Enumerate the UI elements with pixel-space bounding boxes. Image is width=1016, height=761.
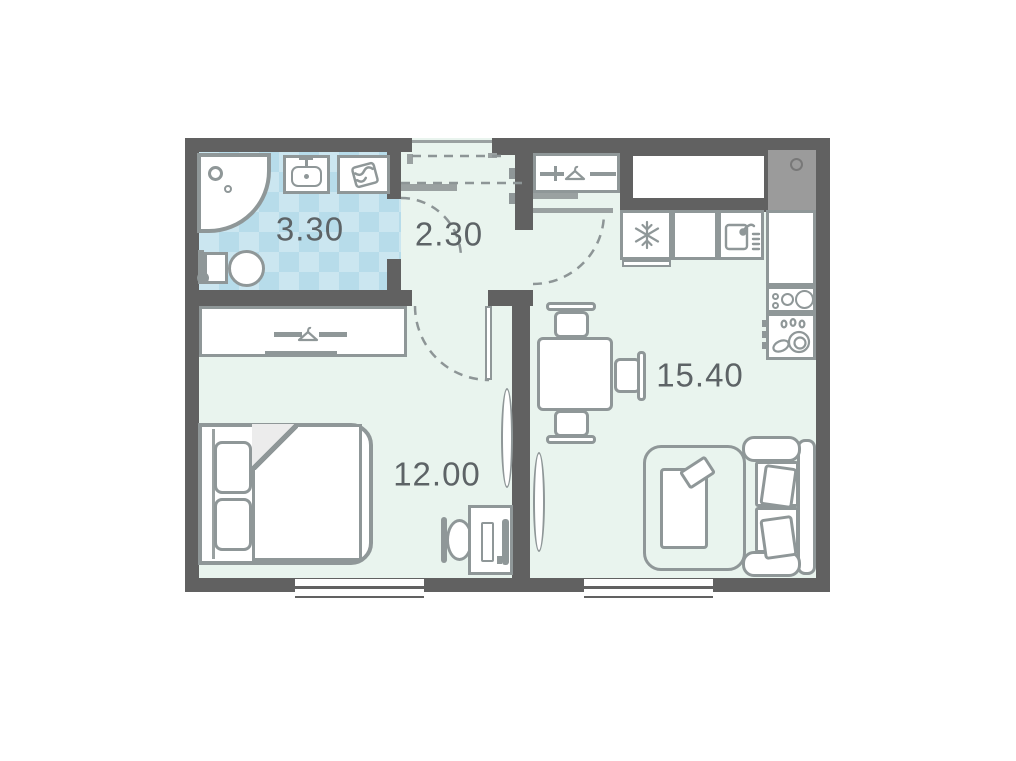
dishwasher-hinge-3 <box>762 342 766 349</box>
shower-head-icon <box>208 166 223 181</box>
floor-plan-canvas: 3.30 2.30 15.40 12.00 <box>0 0 1016 761</box>
keyboard-icon <box>481 522 494 562</box>
bedroom-area-label: 12.00 <box>393 458 481 491</box>
living-tv-icon <box>533 452 545 552</box>
dining-chair-top <box>554 311 589 338</box>
wardrobe <box>199 306 407 357</box>
fridge <box>620 210 672 260</box>
wall-bathroom-right-lower <box>387 259 401 293</box>
vent-pipe-icon <box>790 158 803 171</box>
dining-chair-bottom-back <box>546 435 596 444</box>
wall-center-horizontal <box>488 290 533 306</box>
entrance-door-hinge-upper <box>509 168 515 179</box>
wall-right <box>816 138 830 592</box>
sofa-armrest-top <box>742 436 801 462</box>
entrance-door-swing-arc <box>533 213 604 284</box>
kitchen-counter <box>766 210 816 286</box>
washing-machine <box>337 155 390 194</box>
bathroom-sink <box>283 155 330 194</box>
dining-chair-right-back <box>637 351 646 401</box>
bedroom-door-leaf <box>485 306 492 380</box>
dining-table <box>537 337 613 411</box>
desk <box>468 505 513 575</box>
wardrobe-door-track <box>265 351 337 357</box>
entry-shelf <box>533 193 578 199</box>
pillow-2 <box>214 498 252 551</box>
shower-drain-icon <box>224 185 232 193</box>
wall-top-left <box>185 138 412 152</box>
entrance-door-hinge-lower <box>509 193 515 204</box>
clothes-hanger-icon <box>296 325 320 343</box>
dining-chair-bottom <box>554 410 589 437</box>
floor-drain-icon <box>197 272 209 284</box>
burner-medium <box>781 293 794 306</box>
sink-faucet-icon <box>723 215 763 255</box>
toilet-bowl <box>228 250 265 287</box>
basin-drain-dot <box>304 174 309 179</box>
dishes-icon <box>771 318 815 358</box>
wall-bottom <box>185 578 830 592</box>
dishwasher-hinge-1 <box>762 320 766 327</box>
bedroom-tv-icon <box>501 388 513 488</box>
burner-small-1 <box>772 293 779 300</box>
entry-bench-ledge <box>533 208 613 213</box>
bedroom-window <box>295 579 424 598</box>
burner-large <box>795 290 814 309</box>
sofa-pillow-1 <box>759 464 797 509</box>
coat-rod-tick <box>554 166 557 181</box>
dishwasher <box>766 313 816 360</box>
kitchen-cabinet <box>672 210 718 260</box>
burner-small-2 <box>772 302 779 309</box>
dining-chair-top-back <box>546 302 596 311</box>
dishwasher-hinge-2 <box>762 331 766 338</box>
stove <box>766 286 816 313</box>
kitchen-sink-unit <box>718 210 764 260</box>
pillow-1 <box>214 441 252 494</box>
blanket-fold <box>252 424 298 470</box>
hallway-area-label: 2.30 <box>415 218 483 251</box>
apartment-floor-plan: 3.30 2.30 15.40 12.00 <box>185 138 830 592</box>
living-window <box>584 579 713 598</box>
bathroom-area-label: 3.30 <box>276 213 344 246</box>
fridge-door-strip <box>622 260 671 267</box>
laundry-basket-icon <box>347 159 383 191</box>
wall-bathroom-bedroom <box>185 290 412 306</box>
kitchen-living-area-label: 15.40 <box>656 359 744 392</box>
hallway-shelf-bar <box>401 184 457 191</box>
vent-shaft <box>768 150 816 210</box>
kitchen-window <box>633 156 764 198</box>
entry-coat-niche <box>533 153 620 193</box>
wall-center-vertical <box>512 306 530 578</box>
mouse-icon <box>497 556 502 564</box>
entrance-frame-mark-right <box>488 153 497 158</box>
blanket <box>252 424 362 561</box>
entrance-threshold-line <box>412 140 492 143</box>
entrance-frame-mark-left <box>407 154 413 164</box>
sofa-pillow-2 <box>759 515 797 560</box>
clothes-hanger-icon <box>563 164 587 182</box>
monitor-icon <box>502 519 509 565</box>
wall-entry-pier <box>515 152 533 230</box>
coat-rod-left <box>540 172 564 176</box>
bed <box>198 423 373 565</box>
sofa-backrest <box>797 439 816 575</box>
wardrobe-rod-right <box>319 332 347 337</box>
coat-rod-right <box>590 172 616 176</box>
snowflake-icon <box>632 220 662 250</box>
bedroom-door-swing-arc <box>415 306 489 380</box>
